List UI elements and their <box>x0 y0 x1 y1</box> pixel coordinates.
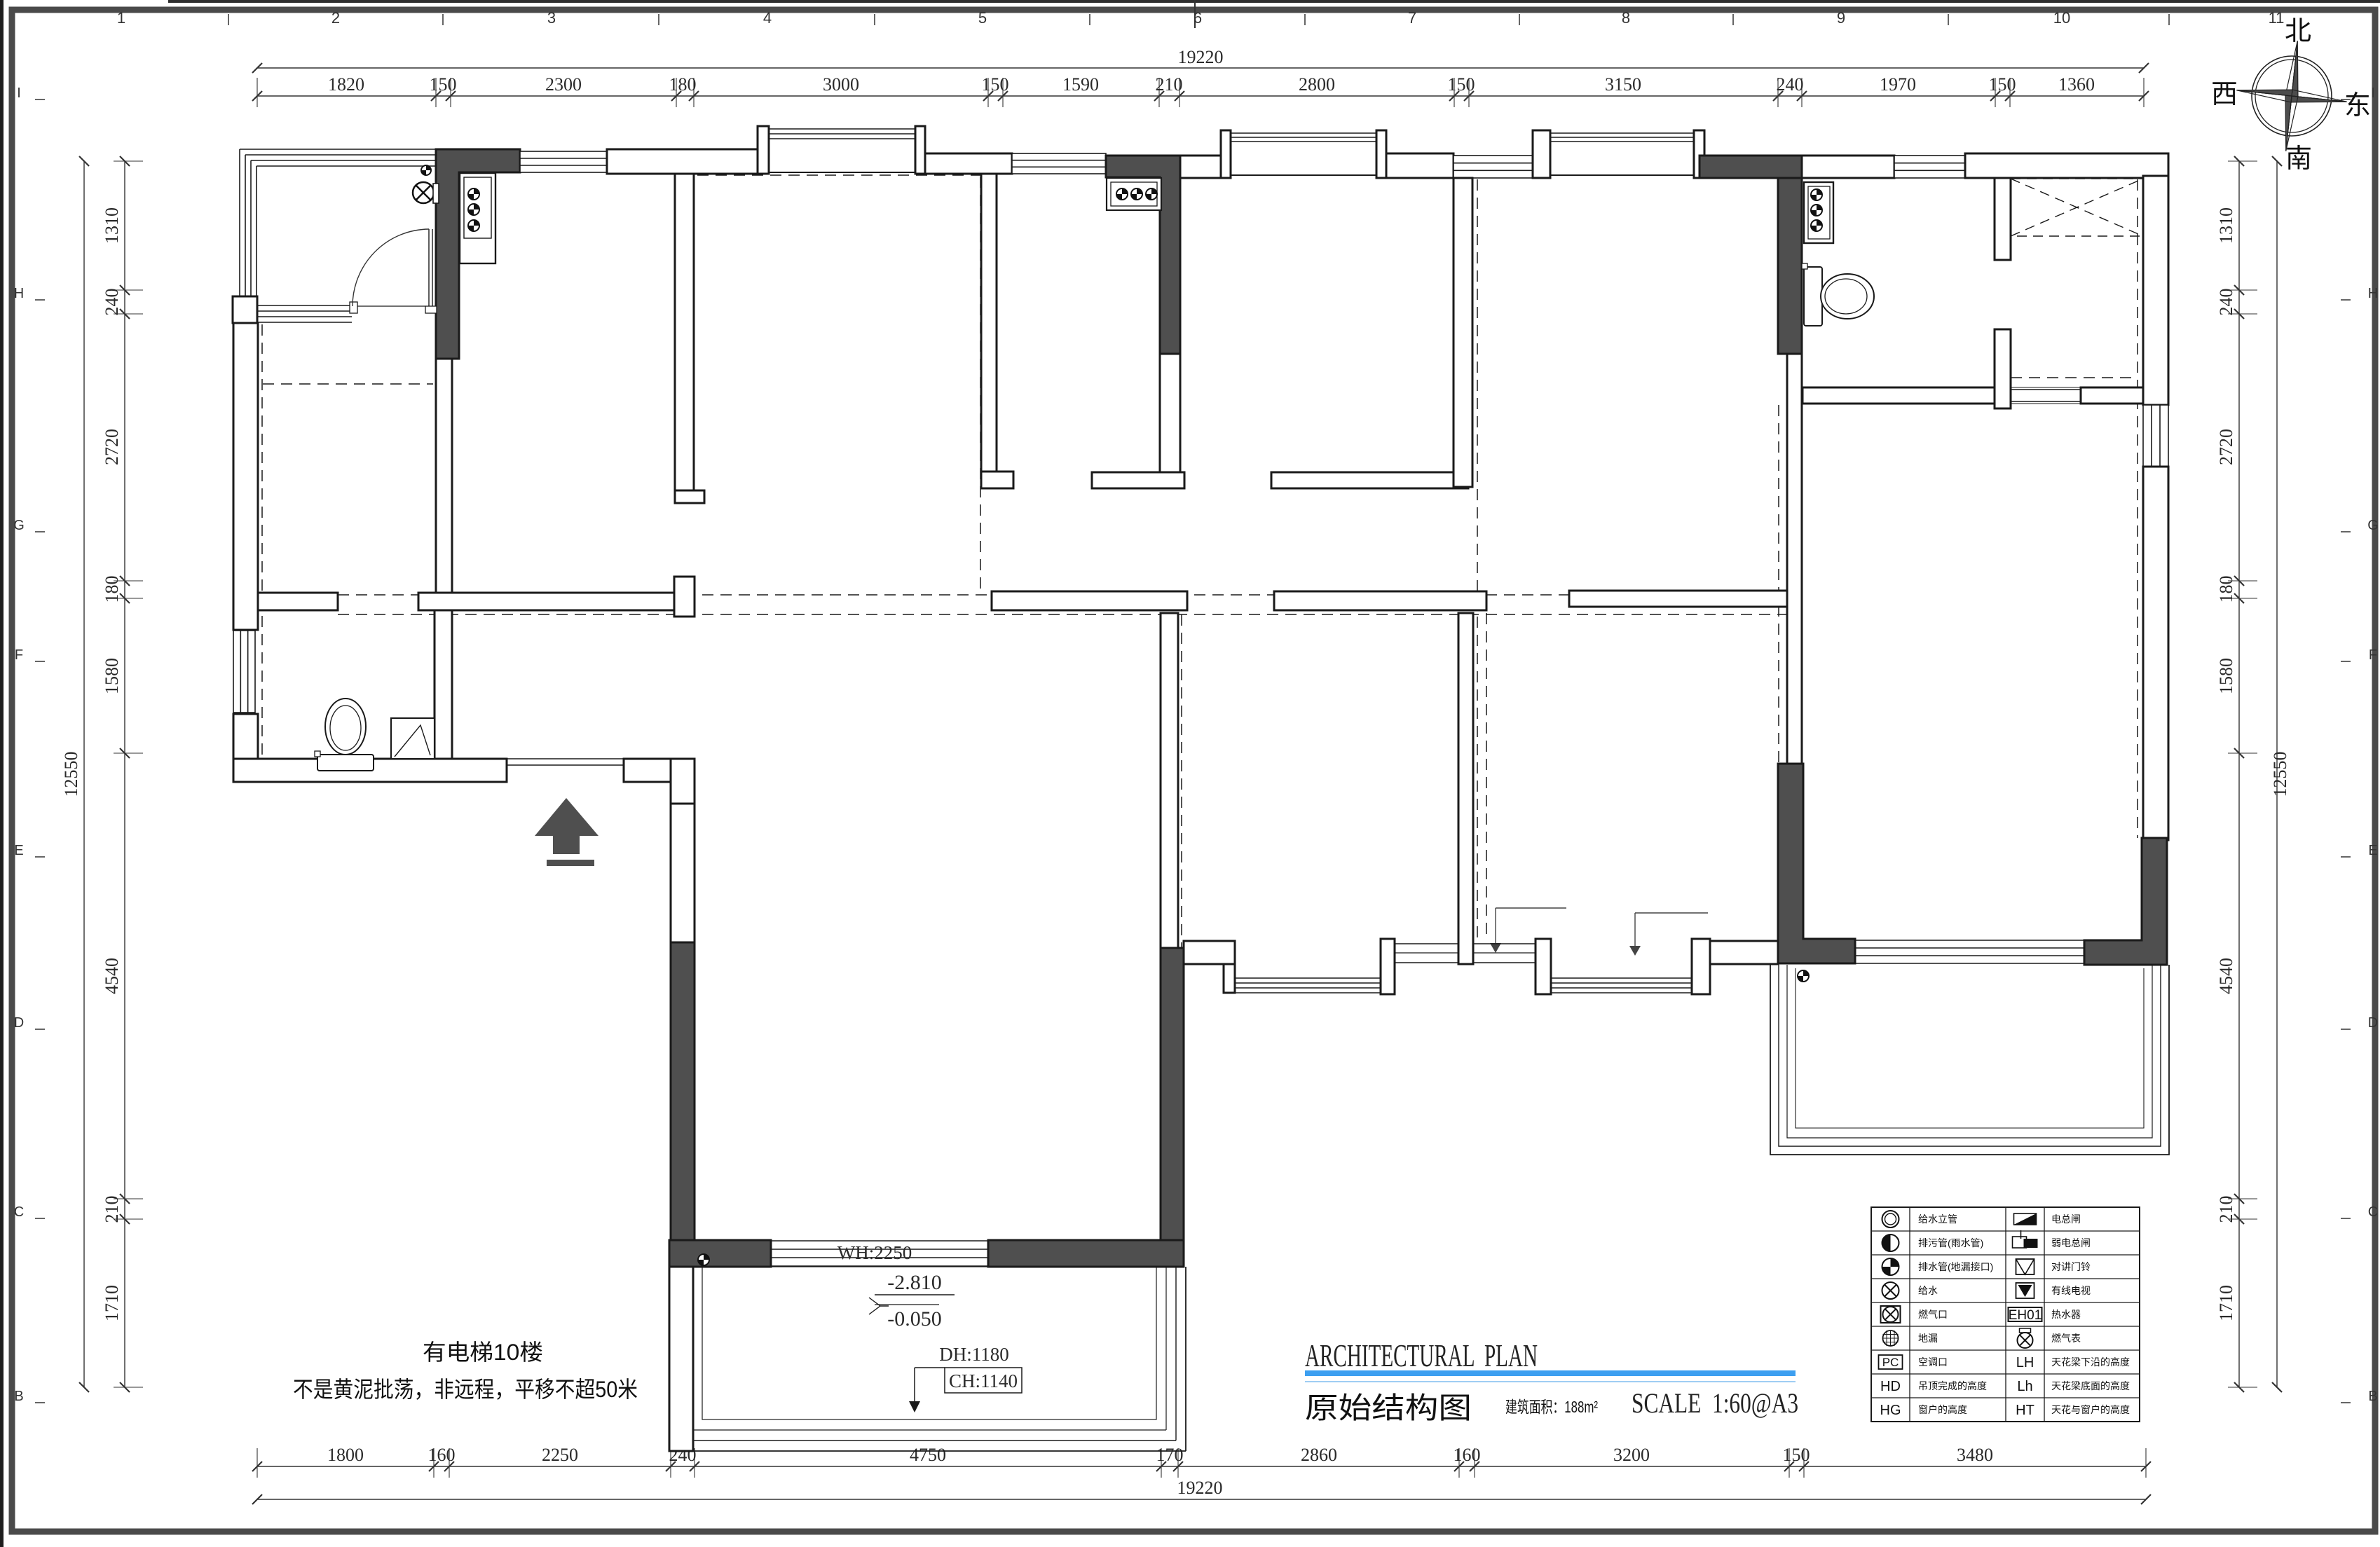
svg-text:210: 210 <box>102 1196 122 1223</box>
svg-text:北: 北 <box>2285 17 2311 46</box>
svg-text:210: 210 <box>1156 74 1183 95</box>
svg-text:G: G <box>13 518 25 533</box>
svg-text:160: 160 <box>428 1445 456 1465</box>
svg-text:SCALE 1:60@A3: SCALE 1:60@A3 <box>1632 1387 1798 1419</box>
svg-text:1580: 1580 <box>2216 658 2236 694</box>
svg-text:160: 160 <box>1454 1445 1481 1465</box>
svg-text:210: 210 <box>2216 1196 2236 1223</box>
svg-text:排水管(地漏接口): 排水管(地漏接口) <box>1918 1261 1993 1272</box>
svg-text:DH:1180: DH:1180 <box>939 1344 1009 1365</box>
svg-text:150: 150 <box>1448 74 1475 95</box>
svg-text:吊顶完成的高度: 吊顶完成的高度 <box>1918 1380 1987 1391</box>
svg-text:B: B <box>2368 1389 2377 1404</box>
svg-text:8: 8 <box>1622 9 1630 27</box>
svg-text:2300: 2300 <box>545 74 582 95</box>
svg-text:3200: 3200 <box>1613 1445 1650 1465</box>
svg-text:给水: 给水 <box>1918 1285 1938 1296</box>
svg-text:180: 180 <box>102 576 122 603</box>
svg-text:有电梯10楼: 有电梯10楼 <box>423 1340 543 1365</box>
svg-text:170: 170 <box>1156 1445 1184 1465</box>
svg-text:有线电视: 有线电视 <box>2051 1285 2091 1296</box>
svg-text:C: C <box>14 1204 24 1220</box>
svg-text:3: 3 <box>547 9 556 27</box>
svg-text:2860: 2860 <box>1301 1445 1337 1465</box>
svg-text:3000: 3000 <box>823 74 859 95</box>
svg-text:2: 2 <box>331 9 340 27</box>
svg-text:对讲门铃: 对讲门铃 <box>2051 1261 2091 1272</box>
svg-text:窗户的高度: 窗户的高度 <box>1918 1404 1967 1415</box>
svg-text:7: 7 <box>1408 9 1416 27</box>
svg-text:HT: HT <box>2016 1403 2034 1418</box>
svg-text:Lh: Lh <box>2017 1379 2032 1394</box>
svg-text:180: 180 <box>669 74 697 95</box>
svg-text:4540: 4540 <box>102 958 122 994</box>
svg-text:C: C <box>2368 1204 2378 1220</box>
svg-text:H: H <box>14 286 24 301</box>
svg-text:150: 150 <box>430 74 457 95</box>
svg-text:热水器: 热水器 <box>2051 1309 2081 1320</box>
svg-text:1710: 1710 <box>102 1285 122 1321</box>
svg-text:HG: HG <box>1880 1403 1901 1418</box>
svg-text:19220: 19220 <box>1177 1478 1223 1498</box>
svg-text:9: 9 <box>1837 9 1845 27</box>
svg-text:ARCHITECTURAL PLAN: ARCHITECTURAL PLAN <box>1305 1338 1538 1373</box>
svg-text:B: B <box>14 1389 23 1404</box>
svg-text:1800: 1800 <box>327 1445 364 1465</box>
svg-text:I: I <box>2371 85 2375 101</box>
svg-text:4750: 4750 <box>910 1445 946 1465</box>
svg-text:19220: 19220 <box>1178 47 1224 67</box>
svg-text:E: E <box>2368 843 2377 858</box>
svg-text:西: 西 <box>2211 80 2238 109</box>
svg-text:1580: 1580 <box>102 658 122 694</box>
svg-text:150: 150 <box>1989 74 2016 95</box>
svg-text:4540: 4540 <box>2216 958 2236 994</box>
svg-text:3480: 3480 <box>1957 1445 1993 1465</box>
svg-text:D: D <box>2368 1015 2378 1031</box>
svg-text:G: G <box>2367 518 2379 533</box>
svg-text:1820: 1820 <box>328 74 364 95</box>
svg-text:1360: 1360 <box>2058 74 2095 95</box>
svg-text:2800: 2800 <box>1299 74 1335 95</box>
svg-text:2720: 2720 <box>2216 429 2236 465</box>
svg-text:PC: PC <box>1882 1356 1899 1369</box>
svg-text:2250: 2250 <box>542 1445 578 1465</box>
svg-text:弱电总闸: 弱电总闸 <box>2051 1237 2091 1249</box>
svg-text:排污管(雨水管): 排污管(雨水管) <box>1918 1237 1983 1249</box>
svg-text:建筑面积：188m²: 建筑面积：188m² <box>1505 1398 1598 1416</box>
svg-text:1710: 1710 <box>2216 1285 2236 1321</box>
svg-text:HD: HD <box>1880 1379 1901 1394</box>
svg-text:F: F <box>15 647 23 663</box>
svg-text:东: 东 <box>2344 91 2371 121</box>
svg-text:1: 1 <box>117 9 125 27</box>
svg-text:4: 4 <box>763 9 772 27</box>
svg-text:240: 240 <box>1777 74 1804 95</box>
svg-text:12550: 12550 <box>2270 752 2290 797</box>
svg-text:1970: 1970 <box>1880 74 1916 95</box>
svg-text:-2.810: -2.810 <box>887 1271 942 1294</box>
svg-text:WH:2250: WH:2250 <box>837 1242 912 1263</box>
svg-text:天花与窗户的高度: 天花与窗户的高度 <box>2051 1404 2130 1415</box>
svg-text:CH:1140: CH:1140 <box>949 1370 1018 1391</box>
svg-text:5: 5 <box>978 9 987 27</box>
svg-text:南: 南 <box>2285 144 2312 174</box>
svg-text:电总闸: 电总闸 <box>2051 1213 2081 1225</box>
svg-text:地漏: 地漏 <box>1918 1333 1938 1344</box>
svg-text:E: E <box>14 843 23 858</box>
svg-text:12550: 12550 <box>61 752 81 797</box>
svg-text:燃气口: 燃气口 <box>1918 1309 1948 1320</box>
svg-text:给水立管: 给水立管 <box>1918 1213 1957 1225</box>
svg-text:原始结构图: 原始结构图 <box>1305 1391 1472 1424</box>
svg-text:1590: 1590 <box>1062 74 1099 95</box>
svg-text:LH: LH <box>2016 1355 2034 1370</box>
svg-text:燃气表: 燃气表 <box>2051 1333 2081 1344</box>
svg-text:240: 240 <box>102 289 122 316</box>
svg-text:F: F <box>2369 647 2377 663</box>
svg-text:空调口: 空调口 <box>1918 1356 1948 1368</box>
svg-text:180: 180 <box>2216 576 2236 603</box>
svg-text:1310: 1310 <box>2216 207 2236 244</box>
svg-text:11: 11 <box>2269 9 2285 27</box>
svg-text:240: 240 <box>2216 289 2236 316</box>
svg-text:不是黄泥批荡，非远程，平移不超50米: 不是黄泥批荡，非远程，平移不超50米 <box>293 1377 638 1402</box>
svg-text:2720: 2720 <box>102 429 122 465</box>
svg-text:EH01: EH01 <box>2009 1308 2042 1323</box>
svg-text:150: 150 <box>1783 1445 1810 1465</box>
svg-text:I: I <box>17 85 21 101</box>
svg-text:150: 150 <box>982 74 1009 95</box>
svg-text:天花梁底面的高度: 天花梁底面的高度 <box>2051 1380 2130 1391</box>
svg-text:10: 10 <box>2053 9 2070 27</box>
svg-text:3150: 3150 <box>1605 74 1641 95</box>
svg-text:1310: 1310 <box>102 207 122 244</box>
svg-text:H: H <box>2368 286 2378 301</box>
svg-text:-0.050: -0.050 <box>887 1307 942 1331</box>
svg-text:天花梁下沿的高度: 天花梁下沿的高度 <box>2051 1356 2130 1368</box>
svg-text:D: D <box>14 1015 24 1031</box>
